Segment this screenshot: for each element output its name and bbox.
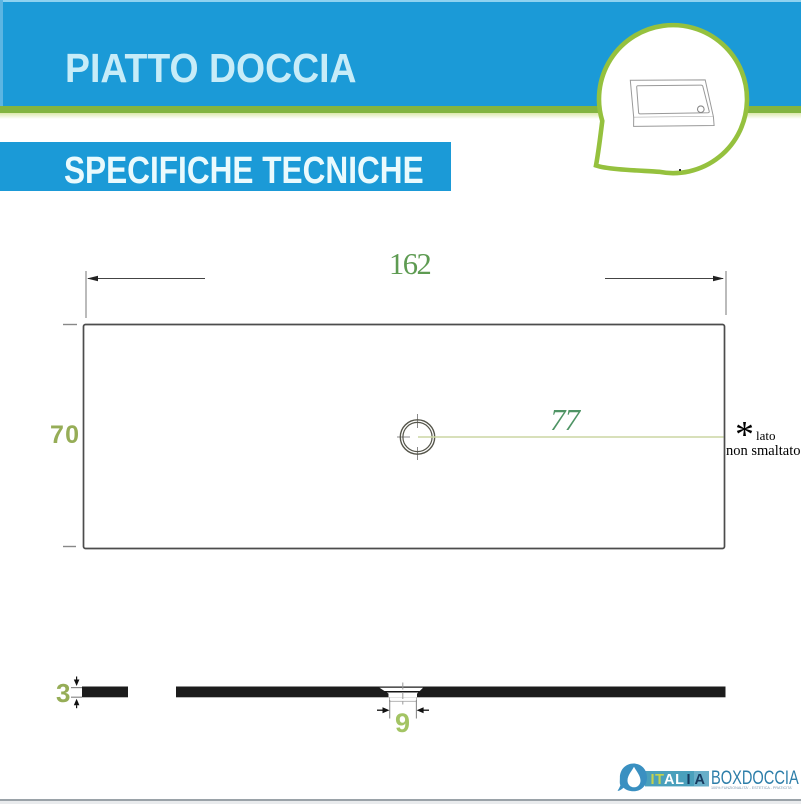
svg-text:100% FUNZIONALITA' - ESTETICA: 100% FUNZIONALITA' - ESTETICA - PRATICIT… [711, 786, 793, 790]
svg-text:AL: AL [664, 772, 685, 788]
svg-text:BOXDOCCIA: BOXDOCCIA [711, 767, 799, 788]
svg-text:IT: IT [651, 772, 665, 788]
svg-text:IA: IA [687, 772, 710, 788]
